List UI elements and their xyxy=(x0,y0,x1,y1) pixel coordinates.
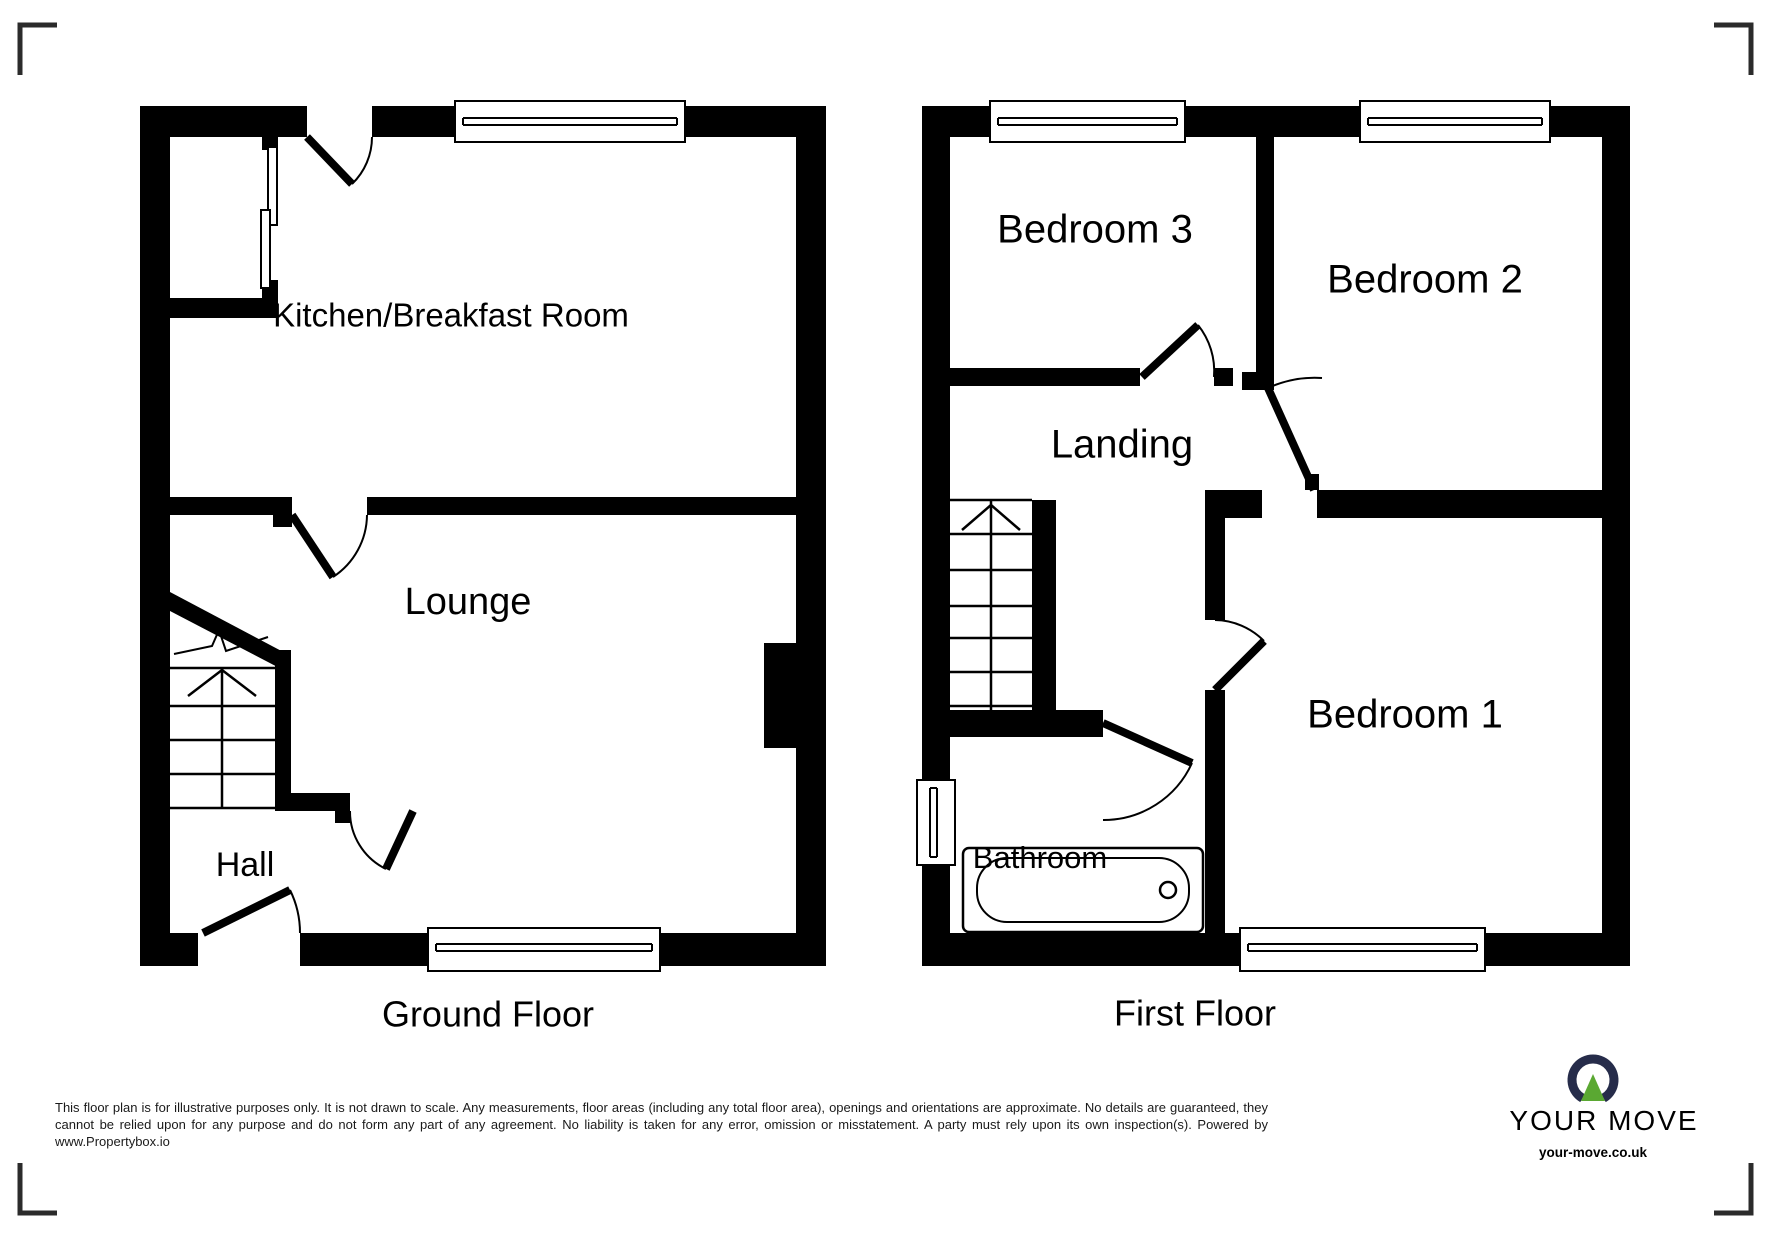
room-label-bedroom3: Bedroom 3 xyxy=(997,208,1193,252)
logo-triangle-icon xyxy=(1581,1074,1605,1101)
door-hall-lounge xyxy=(350,811,413,869)
door-bedroom2 xyxy=(1268,378,1322,490)
ground-floor-title: Ground Floor xyxy=(382,994,594,1035)
door-front-entrance xyxy=(203,890,300,933)
door-bathroom xyxy=(1103,723,1192,820)
stair-direction-arrow xyxy=(962,505,991,530)
room-label-kitchen: Kitchen/Breakfast Room xyxy=(273,297,629,334)
door-kitchen-external xyxy=(307,137,372,184)
corner-mark-bottom-left xyxy=(20,1163,57,1213)
room-label-landing: Landing xyxy=(1051,423,1193,467)
front-door-opening-top xyxy=(307,104,372,139)
room-label-bedroom2: Bedroom 2 xyxy=(1327,258,1523,302)
porch-partition xyxy=(170,137,278,318)
window-kitchen-top xyxy=(455,101,685,142)
chimney-breast xyxy=(764,643,796,748)
window-bedroom1 xyxy=(1240,928,1485,971)
front-door-opening-bottom xyxy=(198,931,300,968)
corner-marks xyxy=(20,25,1751,1213)
glazed-panel xyxy=(261,210,270,288)
floorplan-page: Kitchen/Breakfast Room Lounge Hall xyxy=(0,0,1771,1239)
first-floor-title: First Floor xyxy=(1114,993,1276,1034)
stair-direction-arrow xyxy=(188,670,222,696)
window-bathroom xyxy=(917,780,955,865)
window-lounge-bottom xyxy=(428,928,660,971)
floorplan-drawing: Kitchen/Breakfast Room Lounge Hall xyxy=(0,0,1771,1239)
your-move-logo: YOUR MOVE your-move.co.uk xyxy=(1509,1059,1698,1160)
door-kitchen-lounge xyxy=(292,515,367,577)
room-label-lounge: Lounge xyxy=(405,581,532,623)
stairs-first xyxy=(950,500,1032,710)
door-bedroom3 xyxy=(1142,325,1214,377)
corner-mark-top-left xyxy=(20,25,57,75)
door-bedroom1 xyxy=(1215,620,1264,690)
stair-walls xyxy=(170,592,350,823)
logo-brand-text: YOUR MOVE xyxy=(1509,1105,1698,1136)
first-floor-plan: Bedroom 3 Bedroom 2 Landing Bedroom 1 Ba… xyxy=(917,101,1630,971)
window-bedroom2 xyxy=(1360,101,1550,142)
room-label-hall: Hall xyxy=(216,846,275,884)
corner-mark-bottom-right xyxy=(1714,1163,1751,1213)
kitchen-lounge-wall xyxy=(170,497,796,527)
corner-mark-top-right xyxy=(1714,25,1751,75)
ground-floor-plan: Kitchen/Breakfast Room Lounge Hall xyxy=(140,101,826,971)
window-bedroom3 xyxy=(990,101,1185,142)
room-label-bathroom: Bathroom xyxy=(973,840,1107,875)
disclaimer-text: This floor plan is for illustrative purp… xyxy=(55,1099,1268,1150)
logo-website-text: your-move.co.uk xyxy=(1539,1145,1648,1160)
ground-floor-outer-walls xyxy=(140,106,826,966)
bathtub-drain xyxy=(1160,882,1176,898)
room-label-bedroom1: Bedroom 1 xyxy=(1307,693,1503,737)
